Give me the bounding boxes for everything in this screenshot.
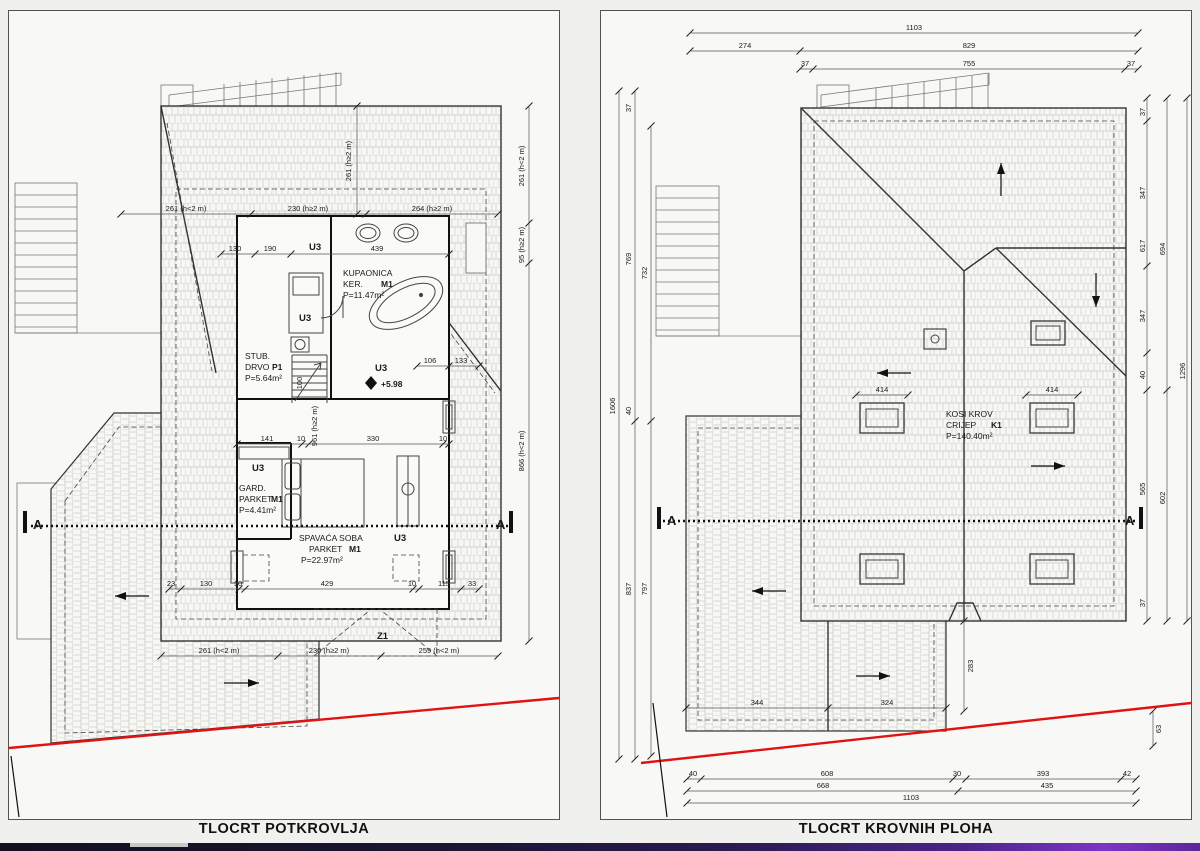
dim-label: 230 (h≥2 m) <box>309 646 350 655</box>
dim-label: 141 <box>261 434 274 443</box>
dim-label: 10 <box>408 579 416 588</box>
dim-label: 133 <box>455 356 468 365</box>
dim-label: 261 (h≥2 m) <box>344 140 353 181</box>
dim-label: 1103 <box>903 793 919 802</box>
dim-label: 261 (h<2 m) <box>199 646 240 655</box>
dim-label: 95 (h≥2 m) <box>517 226 526 263</box>
u3-mark: U3 <box>394 533 406 544</box>
left-plan-title: TLOCRT POTKROVLJA <box>8 821 560 843</box>
roof-finish: CRIJEP <box>946 420 977 430</box>
dim-label: 10 <box>439 434 447 443</box>
dim-label: 608 <box>821 769 834 778</box>
dim-label: 393 <box>1037 769 1050 778</box>
u3-mark: U3 <box>252 463 264 474</box>
dim-label: 23 <box>167 579 175 588</box>
roof-area: P=140.40m² <box>946 431 993 441</box>
room-area: P=4.41m² <box>239 505 276 515</box>
dim-label: 347 <box>1138 310 1147 323</box>
dim-label: 261 (h<2 m) <box>166 204 207 213</box>
dim-label: 40 <box>624 407 633 415</box>
taskbar-notch <box>130 843 188 847</box>
roof-opening <box>466 223 486 273</box>
u3-mark: U3 <box>299 313 311 324</box>
room-area: P=5.64m² <box>245 373 282 383</box>
dim-label: 732 <box>640 267 649 280</box>
room-name: SPAVAĆA SOBA <box>299 533 363 543</box>
dim-label: 230 (h≥2 m) <box>288 204 329 213</box>
room-finish: PARKET <box>239 494 272 504</box>
room-mark: M1 <box>349 544 361 554</box>
dim-label: 617 <box>1138 240 1147 253</box>
dim-label: 130 <box>200 579 213 588</box>
dim-label: 1606 <box>608 398 617 415</box>
room-name: KUPAONICA <box>343 268 393 278</box>
room-name: GARD. <box>239 483 266 493</box>
dim-label: 435 <box>1041 781 1054 790</box>
room-finish: DRVO <box>245 362 270 372</box>
roof-mark: K1 <box>991 420 1002 430</box>
dim-label: 274 <box>739 41 752 50</box>
u3-mark: U3 <box>309 242 321 253</box>
dim-label: 414 <box>1046 385 1059 394</box>
boundary-line <box>11 756 19 817</box>
pergola-outline <box>817 73 989 109</box>
dim-label: 602 <box>1158 492 1167 505</box>
dim-label: 106 <box>424 356 437 365</box>
dim-label: 259 (h<2 m) <box>419 646 460 655</box>
external-stairs <box>656 186 801 336</box>
roof-name: KOSI KROV <box>946 409 993 419</box>
room-name: STUB. <box>245 351 270 361</box>
pergola-outline <box>161 72 341 109</box>
dim-label: 347 <box>1138 187 1147 200</box>
room-mark: P1 <box>272 362 283 372</box>
dim-label: 324 <box>881 698 894 707</box>
dim-label: 33 <box>468 579 476 588</box>
dim-label: 1296 <box>1178 363 1187 380</box>
section-label: A <box>33 517 43 532</box>
dim-label: 10 <box>234 579 242 588</box>
dim-label: 961 (h≥2 m) <box>310 405 319 446</box>
dim-label: 115 <box>438 579 450 588</box>
dim-label: 344 <box>751 698 764 707</box>
right-plan-title: TLOCRT KROVNIH PLOHA <box>600 821 1192 843</box>
dim-label: 283 <box>966 660 975 673</box>
dim-label: 30 <box>953 769 961 778</box>
dim-label: 37 <box>801 59 809 68</box>
dim-label: 414 <box>876 385 889 394</box>
dim-label: 37 <box>624 104 633 112</box>
dim-label: 837 <box>624 583 633 596</box>
dim-label: 829 <box>963 41 976 50</box>
attic-plan-panel: A A KUPAONICA KER. M1 P=11.47m² STUB. DR… <box>8 10 560 820</box>
dim-label: 755 <box>963 59 976 68</box>
room-finish: PARKET <box>309 544 342 554</box>
room-mark: M1 <box>381 279 393 289</box>
dim-label: 866 (h<2 m) <box>517 430 526 471</box>
taskbar-strip <box>0 843 1200 851</box>
z1-mark: Z1 <box>377 631 389 642</box>
dim-label: 769 <box>624 253 633 266</box>
dim-label: 42 <box>1123 769 1131 778</box>
dim-label: 261 (h<2 m) <box>517 145 526 186</box>
dim-label: 37 <box>1138 108 1147 116</box>
dim-label: 37 <box>1127 59 1135 68</box>
dim-label: 100 <box>295 377 304 390</box>
dim-label: 797 <box>640 583 649 596</box>
dim-label: 40 <box>1138 371 1147 379</box>
dim-label: 439 <box>371 244 384 253</box>
dim-label: 565 <box>1138 483 1147 496</box>
dim-label: 330 <box>367 434 380 443</box>
section-label: A <box>496 517 506 532</box>
room-mark: M1 <box>271 494 283 504</box>
roof-plan-drawing: A A KOSI KROV CRIJEP K1 P=140.40m² 1103 … <box>601 11 1191 819</box>
roof-plan-panel: A A KOSI KROV CRIJEP K1 P=140.40m² 1103 … <box>600 10 1192 820</box>
dim-label: 1103 <box>906 23 922 32</box>
section-label: A <box>667 513 677 528</box>
dim-label: 37 <box>1138 599 1147 607</box>
dim-label: 63 <box>1154 725 1163 733</box>
section-label: A <box>1125 513 1135 528</box>
dim-label: 10 <box>297 434 305 443</box>
attic-plan-drawing: A A KUPAONICA KER. M1 P=11.47m² STUB. DR… <box>9 11 559 819</box>
room-area: P=11.47m² <box>343 290 384 300</box>
drawing-sheet: A A KUPAONICA KER. M1 P=11.47m² STUB. DR… <box>0 0 1200 851</box>
dim-label: 130 <box>229 244 242 253</box>
dim-label: 694 <box>1158 243 1167 256</box>
room-finish: KER. <box>343 279 363 289</box>
dim-label: 40 <box>689 769 697 778</box>
dim-label: 429 <box>321 579 334 588</box>
dim-label: 668 <box>817 781 830 790</box>
dim-label: 190 <box>264 244 277 253</box>
room-area: P=22.97m² <box>301 555 343 565</box>
elevation-value: +5.98 <box>381 379 403 389</box>
dim-label: 264 (h≥2 m) <box>412 204 453 213</box>
u3-mark: U3 <box>375 363 387 374</box>
